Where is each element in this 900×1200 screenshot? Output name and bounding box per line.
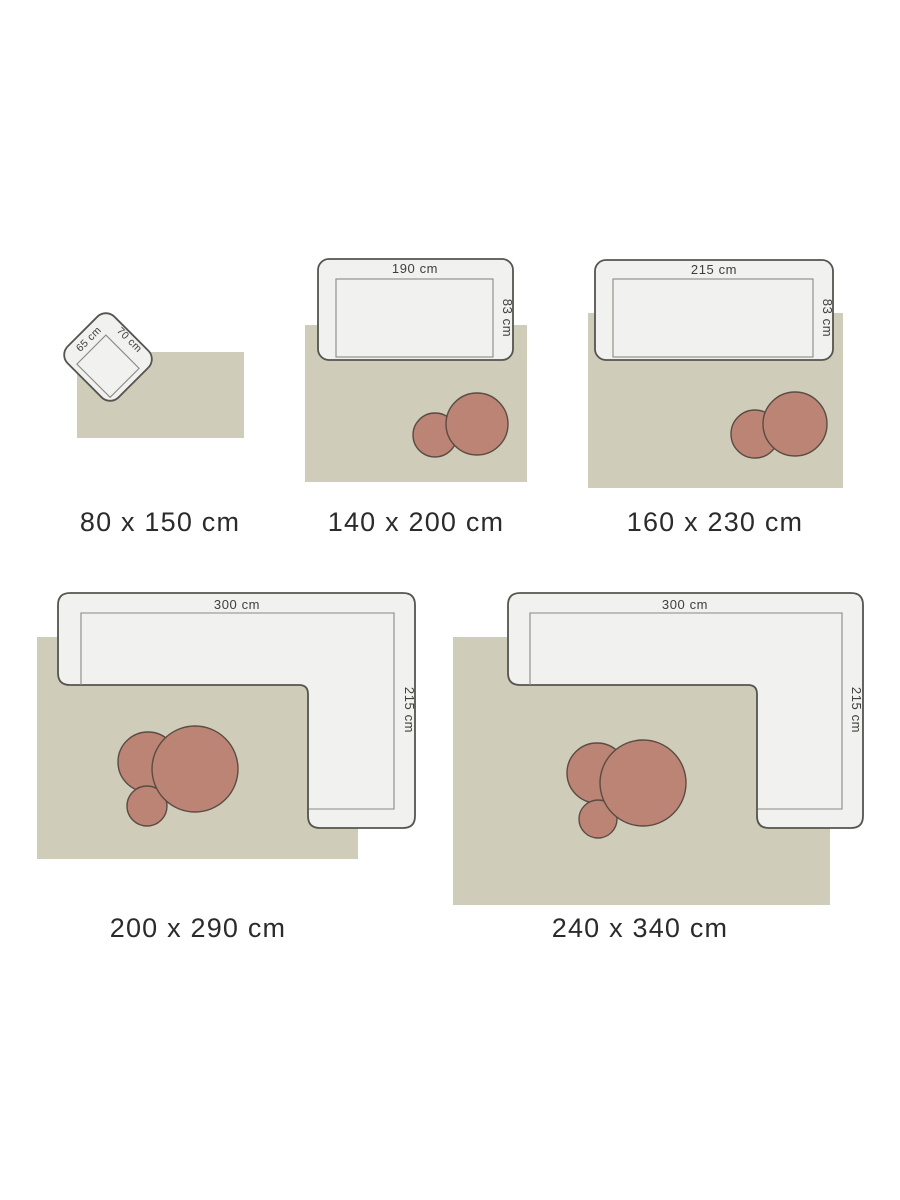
size-diagram-240x340: 300 cm 215 cm bbox=[445, 585, 880, 920]
size-caption: 240 x 340 cm bbox=[446, 912, 834, 944]
depth-dimension-label: 83 cm bbox=[500, 299, 515, 337]
rug-size-guide: 65 cm 70 cm 80 x 150 cm 190 cm 83 cm 140… bbox=[0, 0, 900, 1200]
width-dimension-label: 300 cm bbox=[662, 597, 708, 612]
size-caption: 160 x 230 cm bbox=[595, 506, 835, 538]
size-caption: 200 x 290 cm bbox=[18, 912, 378, 944]
size-caption: 80 x 150 cm bbox=[50, 506, 270, 538]
size-diagram-160x230: 215 cm 83 cm bbox=[580, 248, 855, 493]
size-diagram-140x200: 190 cm 83 cm bbox=[295, 248, 540, 493]
coffee-table-circle-large bbox=[600, 740, 686, 826]
sofa-top-view: 215 cm 83 cm bbox=[595, 260, 835, 360]
size-diagram-80x150: 65 cm 70 cm bbox=[40, 280, 260, 465]
width-dimension-label: 300 cm bbox=[214, 597, 260, 612]
coffee-table-circle-large bbox=[446, 393, 508, 455]
depth-dimension-label: 215 cm bbox=[402, 687, 417, 733]
depth-dimension-label: 83 cm bbox=[820, 299, 835, 337]
size-diagram-200x290: 300 cm 215 cm bbox=[20, 585, 440, 880]
width-dimension-label: 215 cm bbox=[691, 262, 737, 277]
sofa-top-view: 190 cm 83 cm bbox=[318, 259, 515, 360]
coffee-table-circle-large bbox=[152, 726, 238, 812]
coffee-table-circle-large bbox=[763, 392, 827, 456]
size-caption: 140 x 200 cm bbox=[296, 506, 536, 538]
width-dimension-label: 190 cm bbox=[392, 261, 438, 276]
depth-dimension-label: 215 cm bbox=[849, 687, 864, 733]
